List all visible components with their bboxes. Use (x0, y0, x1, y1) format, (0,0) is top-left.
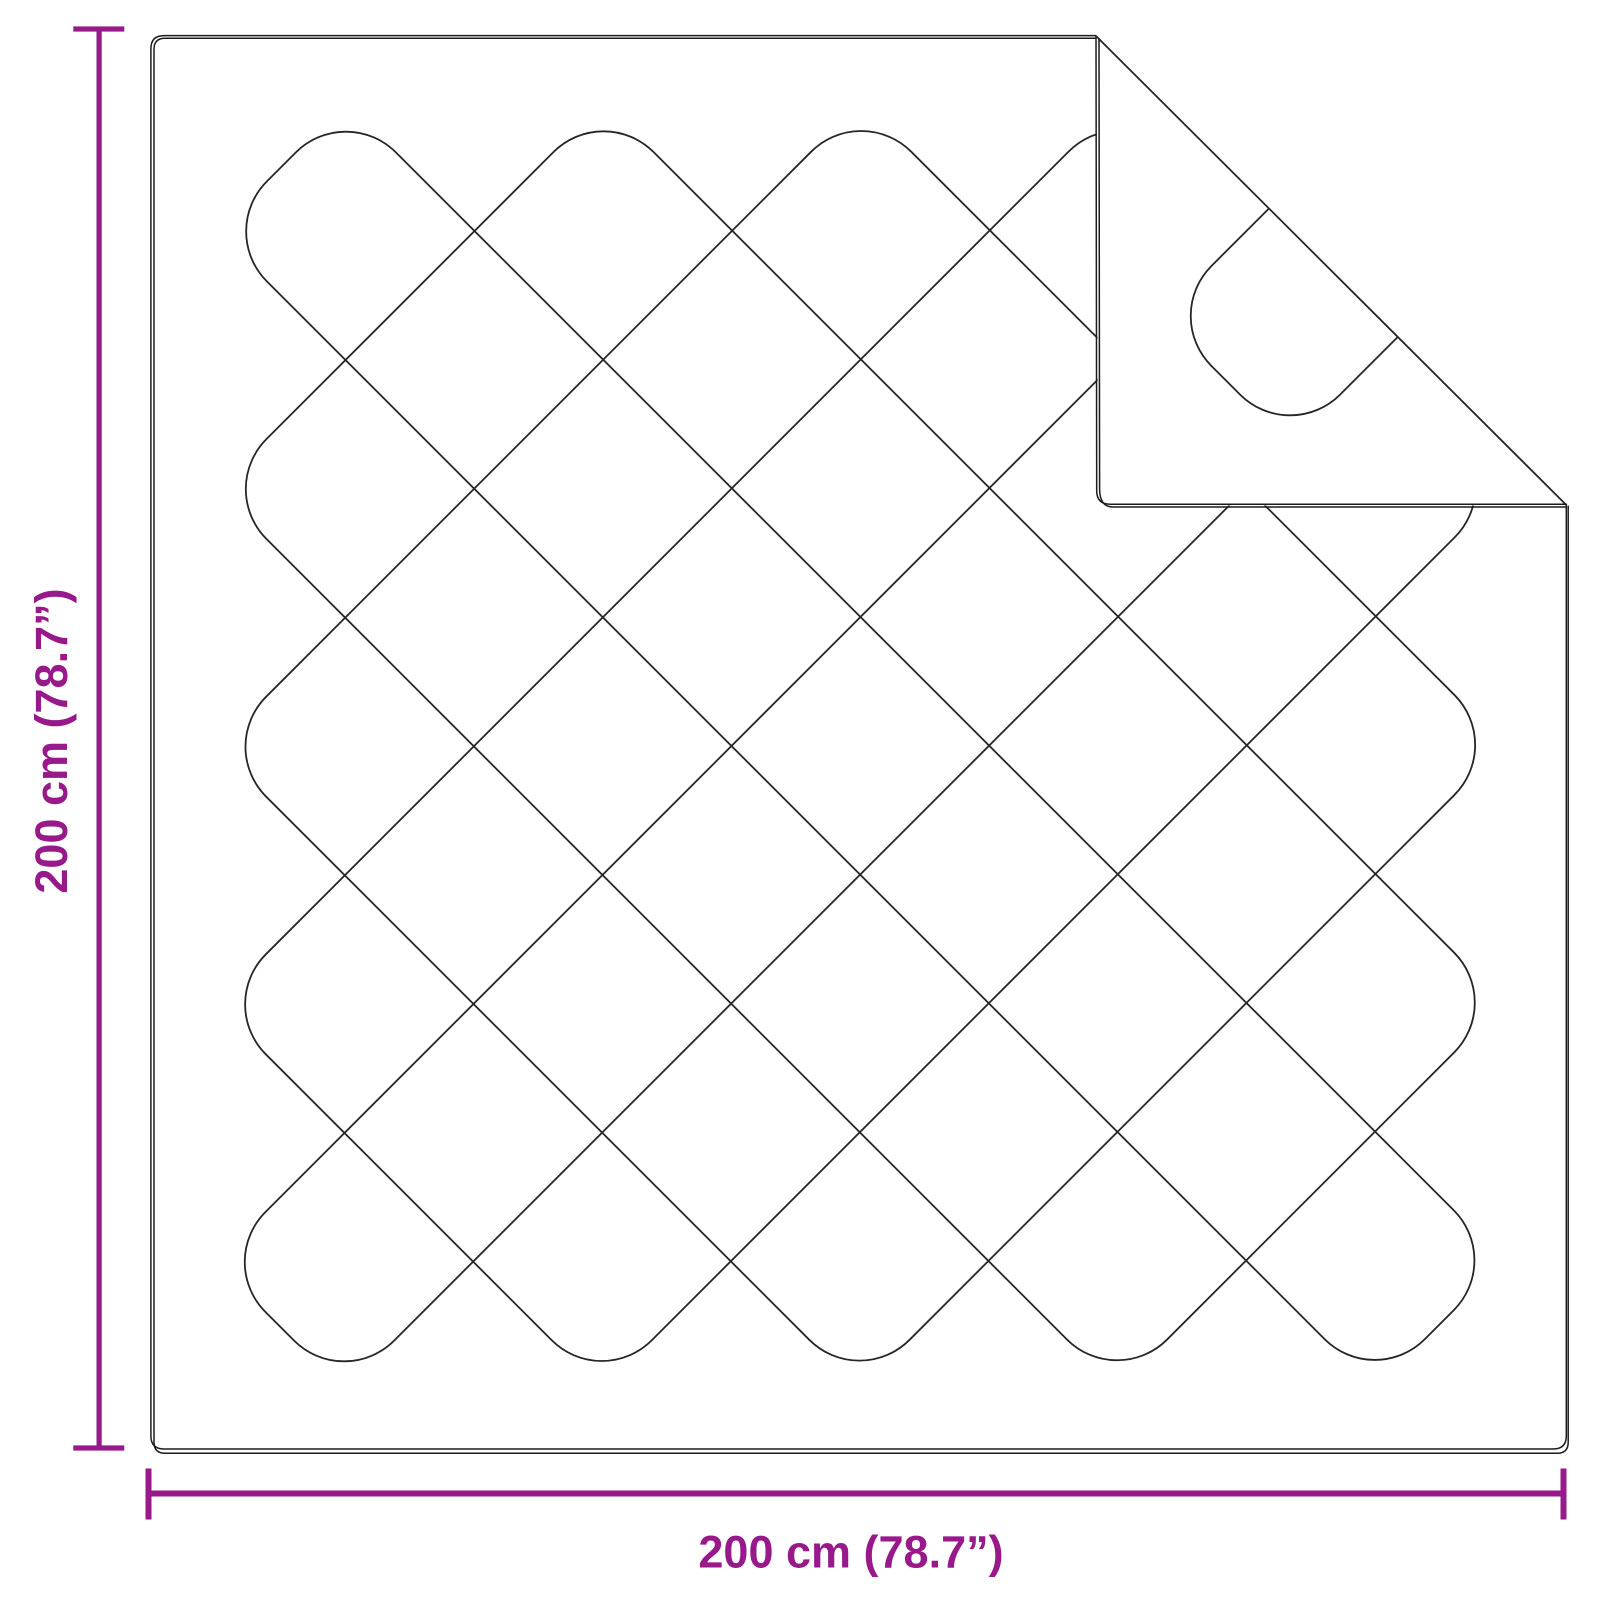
svg-text:200 cm (78.7”): 200 cm (78.7”) (698, 1527, 1003, 1578)
svg-text:200 cm (78.7”): 200 cm (78.7”) (26, 588, 77, 893)
